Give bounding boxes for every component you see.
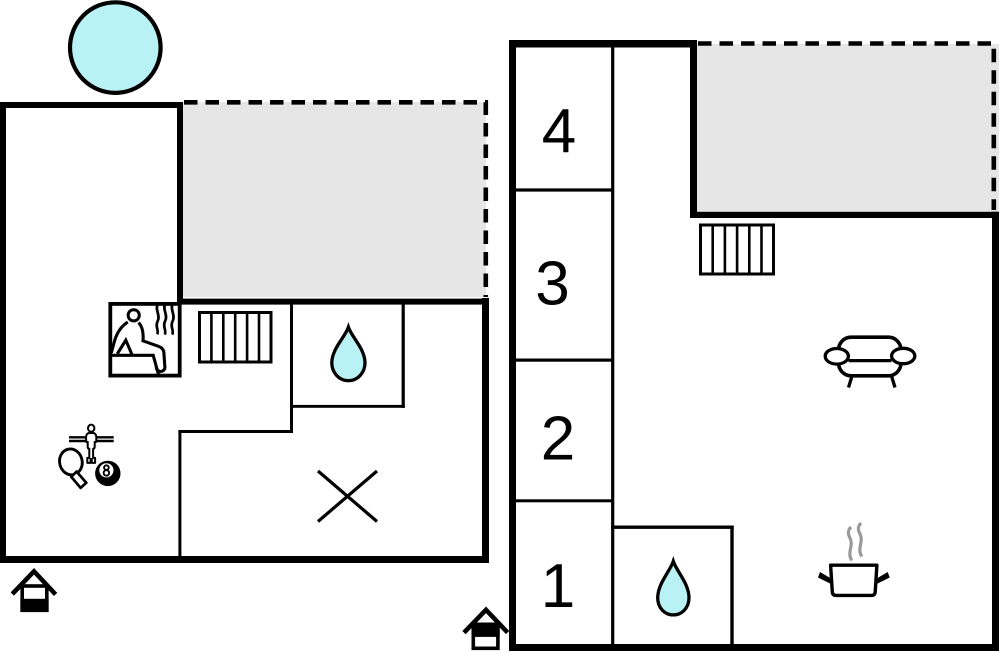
svg-text:3: 3 [535,250,569,319]
svg-text:4: 4 [542,97,576,166]
svg-text:1: 1 [541,552,575,621]
svg-text:2: 2 [541,405,575,474]
